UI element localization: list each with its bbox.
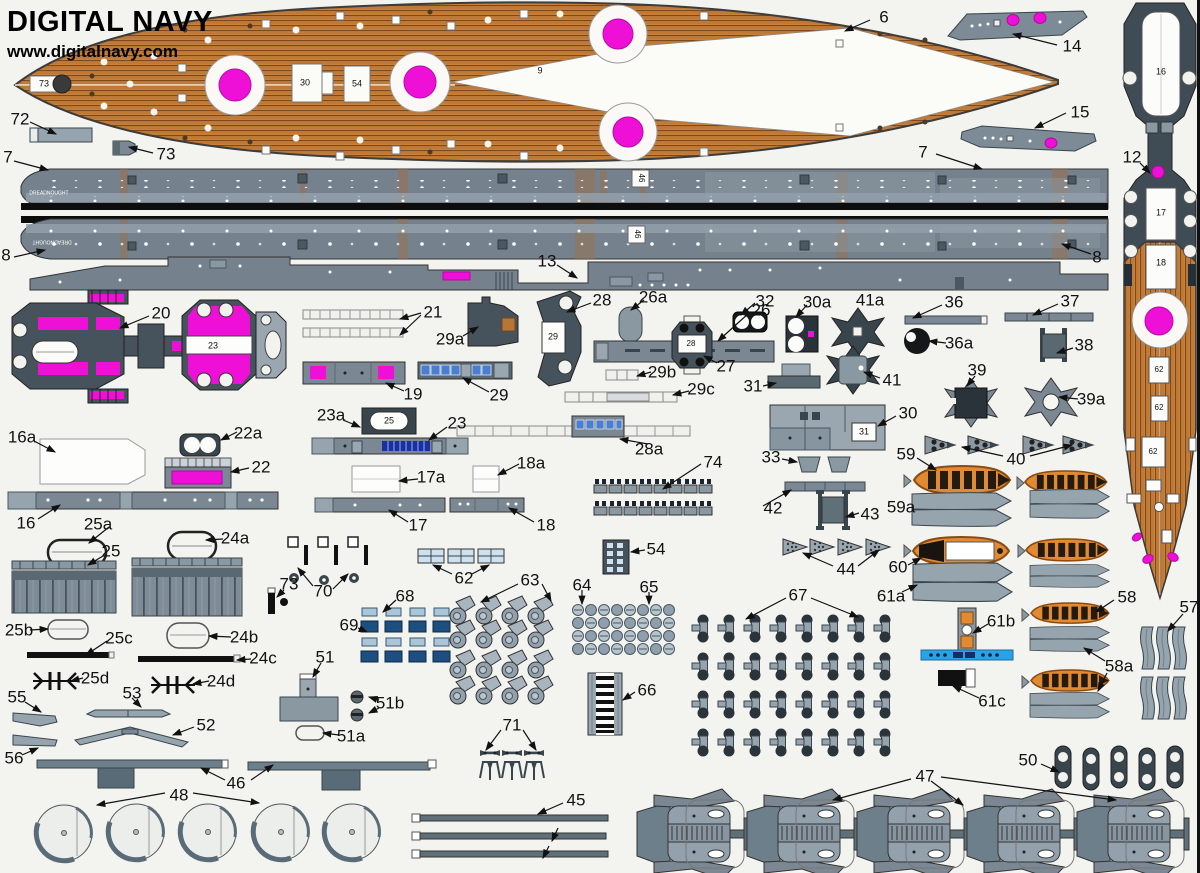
leader-line (1062, 244, 1091, 254)
leader-line (25, 702, 41, 712)
leader-line (132, 698, 141, 707)
leader-line (796, 305, 807, 317)
leader-line (486, 730, 501, 750)
header: DIGITAL NAVY www.digitalnavy.com (7, 6, 213, 62)
leader-line (472, 565, 489, 574)
leader-line (251, 765, 273, 780)
leader-line (623, 692, 635, 700)
leader-line (97, 793, 165, 805)
leader-line (637, 372, 651, 376)
leader-line (953, 686, 979, 698)
leader-line (620, 439, 648, 444)
leader-line (120, 316, 149, 328)
leader-line (523, 730, 536, 750)
leader-line (429, 427, 447, 440)
leader-line (718, 313, 749, 341)
leader-line (389, 510, 408, 522)
leader-line (323, 733, 339, 735)
leader-line (763, 383, 776, 386)
leader-line (763, 490, 791, 506)
leader-line (201, 768, 225, 780)
leader-line (663, 464, 701, 489)
leader-line (833, 779, 911, 800)
leader-line (673, 391, 689, 395)
leader-line (88, 556, 103, 565)
leader-line (193, 681, 209, 684)
leader-line (34, 441, 55, 452)
leader-line (631, 550, 645, 552)
leader-line (845, 20, 870, 31)
leader-line (803, 553, 833, 566)
leader-line (383, 600, 396, 612)
leader-line (846, 513, 859, 517)
leader-line (542, 584, 551, 601)
leader-line (557, 265, 577, 278)
leader-line (929, 341, 946, 343)
leader-line (782, 459, 797, 462)
leader-line (917, 458, 936, 470)
leader-line (1041, 764, 1059, 772)
leader-line (498, 464, 519, 475)
leader-line (333, 574, 348, 589)
leader-line (399, 479, 418, 481)
leader-line (1168, 614, 1183, 631)
leader-line (936, 154, 982, 169)
leader-line (1084, 648, 1105, 661)
leader-line (129, 147, 153, 153)
paper-model-sheet: 61415127273778813202129a2826a26273230a41… (0, 0, 1200, 873)
leader-line (209, 636, 231, 637)
leader-line (30, 629, 48, 630)
leader-line (973, 624, 988, 633)
brand-url: www.digitalnavy.com (7, 42, 213, 62)
leader-line (358, 628, 367, 632)
leader-line (193, 793, 259, 803)
leader-line (386, 383, 404, 391)
leader-line (89, 527, 109, 543)
leader-line (30, 122, 56, 134)
leader-line (864, 372, 880, 378)
leader-line (1098, 673, 1107, 691)
leader-line (902, 585, 917, 592)
leader-line (1033, 304, 1058, 315)
leader-line (481, 584, 518, 602)
leader-line (14, 250, 45, 257)
leader-line (237, 659, 251, 660)
leader-line (277, 590, 284, 597)
leader-line (1096, 600, 1114, 612)
leader-line (538, 803, 563, 814)
leader-line (1140, 163, 1150, 173)
leader-line (878, 416, 896, 426)
leader-lines (0, 0, 1200, 873)
leader-line (71, 678, 83, 681)
leader-line (14, 161, 48, 170)
leader-line (22, 748, 38, 755)
leader-line (38, 505, 60, 519)
leader-line (313, 663, 321, 677)
leader-line (463, 327, 478, 336)
leader-line (463, 378, 489, 392)
leader-line (1013, 34, 1057, 45)
leader-line (298, 568, 313, 586)
leader-line (86, 641, 107, 655)
leader-line (858, 550, 879, 566)
leader-line (369, 697, 379, 700)
leader-line (941, 777, 1116, 800)
leader-line (509, 508, 534, 522)
brand-title: DIGITAL NAVY (7, 6, 213, 39)
leader-line (1030, 445, 1072, 456)
leader-line (631, 300, 644, 310)
leader-line (433, 565, 452, 574)
leader-line (908, 558, 921, 565)
leader-line (1059, 397, 1078, 399)
leader-line (704, 356, 717, 363)
leader-line (369, 708, 379, 713)
leader-line (567, 303, 591, 312)
leader-line (552, 828, 558, 841)
leader-line (543, 846, 549, 858)
leader-line (967, 376, 975, 386)
leader-line (811, 598, 858, 617)
leader-line (231, 468, 249, 472)
leader-line (1035, 113, 1066, 128)
leader-line (343, 420, 360, 427)
leader-line (962, 447, 1003, 456)
leader-line (746, 598, 786, 619)
leader-line (1057, 348, 1073, 353)
leader-line (173, 727, 194, 735)
leader-line (913, 305, 942, 318)
leader-line (221, 432, 237, 440)
leader-line (206, 539, 223, 540)
leader-line (931, 781, 963, 805)
